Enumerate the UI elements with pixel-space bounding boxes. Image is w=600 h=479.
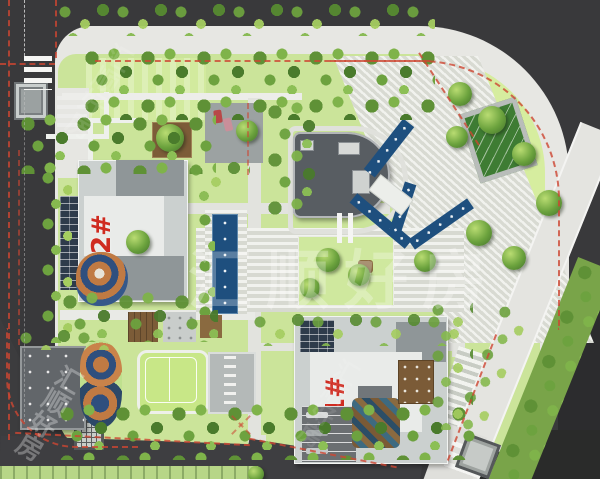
tree — [248, 466, 264, 479]
red-dash-site-west — [18, 150, 20, 345]
lane-marking — [24, 0, 25, 56]
crosswalk-city-road — [24, 56, 52, 90]
hedge-strip-south — [0, 466, 258, 479]
tree-grove-top-outer — [55, 2, 435, 36]
tree — [126, 230, 150, 254]
tree — [300, 278, 320, 298]
red-dash-dropoff — [247, 103, 249, 175]
building-2-label-text: 2# — [89, 214, 115, 254]
sports-field-lines — [145, 357, 197, 403]
tree-grove-clubhouse-west — [263, 100, 323, 215]
site-plan-rendering: 2# 1# — [0, 0, 600, 479]
tree-grove-building-2-east — [186, 160, 250, 206]
sports-field-centerline — [169, 357, 170, 401]
building-2-label: 2# — [74, 216, 130, 252]
red-dash-west-top — [55, 0, 57, 58]
fountain-row — [224, 356, 236, 406]
